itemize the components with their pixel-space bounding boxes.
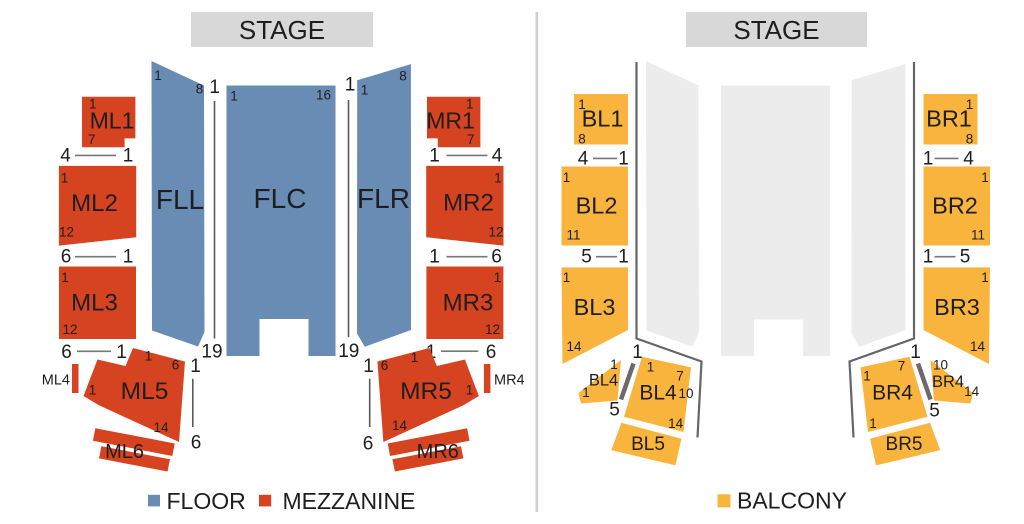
svg-text:5: 5 — [609, 400, 620, 421]
svg-text:1: 1 — [345, 75, 356, 96]
svg-text:19: 19 — [338, 341, 359, 362]
svg-text:FLL: FLL — [156, 184, 204, 215]
svg-text:BL4: BL4 — [589, 372, 618, 390]
svg-text:6: 6 — [61, 247, 72, 268]
svg-text:14: 14 — [964, 384, 980, 399]
svg-text:11: 11 — [566, 227, 580, 242]
svg-text:1: 1 — [429, 145, 440, 166]
svg-text:5: 5 — [581, 246, 592, 267]
svg-text:1: 1 — [981, 170, 989, 185]
svg-text:1: 1 — [61, 171, 69, 186]
svg-text:1: 1 — [429, 247, 440, 268]
svg-text:BL3: BL3 — [574, 294, 616, 320]
svg-text:1: 1 — [610, 357, 618, 372]
svg-text:ML6: ML6 — [105, 441, 144, 463]
svg-text:4: 4 — [578, 148, 589, 169]
svg-text:1: 1 — [411, 350, 419, 365]
svg-text:1: 1 — [61, 270, 69, 285]
svg-text:6: 6 — [363, 434, 374, 455]
svg-text:4: 4 — [60, 145, 71, 166]
svg-text:BALCONY: BALCONY — [737, 488, 847, 514]
svg-text:11: 11 — [971, 227, 985, 242]
svg-text:MR1: MR1 — [426, 108, 475, 134]
svg-text:1: 1 — [154, 68, 162, 83]
svg-text:6: 6 — [486, 342, 497, 363]
svg-text:MR3: MR3 — [443, 290, 494, 317]
svg-text:BR4: BR4 — [872, 382, 913, 405]
svg-text:MR6: MR6 — [417, 441, 459, 463]
svg-text:1: 1 — [863, 369, 871, 384]
svg-text:BL2: BL2 — [576, 193, 618, 219]
svg-text:6: 6 — [191, 433, 202, 454]
svg-text:1: 1 — [869, 416, 877, 431]
svg-text:5: 5 — [960, 246, 971, 267]
svg-text:6: 6 — [381, 358, 389, 373]
svg-text:ML1: ML1 — [90, 108, 135, 134]
svg-text:1: 1 — [145, 349, 153, 364]
svg-text:6: 6 — [491, 247, 502, 268]
svg-text:MR4: MR4 — [494, 373, 525, 389]
svg-text:MR2: MR2 — [443, 190, 494, 217]
svg-text:1: 1 — [209, 77, 220, 98]
svg-text:12: 12 — [62, 322, 77, 337]
svg-text:1: 1 — [466, 383, 474, 398]
svg-text:10: 10 — [678, 386, 693, 401]
svg-text:1: 1 — [923, 246, 934, 267]
svg-text:1: 1 — [563, 170, 571, 185]
svg-text:19: 19 — [201, 342, 222, 363]
svg-text:1: 1 — [647, 360, 655, 375]
svg-text:1: 1 — [190, 356, 201, 377]
svg-text:1: 1 — [923, 148, 934, 169]
svg-text:BL1: BL1 — [582, 106, 624, 132]
svg-text:7: 7 — [676, 369, 684, 384]
svg-text:10: 10 — [933, 358, 948, 373]
svg-text:1: 1 — [981, 270, 989, 285]
svg-text:ML5: ML5 — [121, 378, 169, 405]
svg-text:1: 1 — [910, 342, 921, 363]
svg-text:FLOOR: FLOOR — [167, 488, 246, 514]
svg-text:1: 1 — [123, 247, 134, 268]
svg-text:14: 14 — [392, 418, 408, 433]
svg-text:BR5: BR5 — [886, 434, 923, 455]
svg-text:BR3: BR3 — [934, 294, 980, 320]
svg-text:BL4: BL4 — [639, 382, 677, 405]
svg-text:5: 5 — [929, 401, 940, 422]
svg-text:12: 12 — [485, 322, 500, 337]
svg-text:7: 7 — [467, 132, 475, 147]
svg-text:8: 8 — [966, 131, 974, 146]
svg-text:1: 1 — [363, 356, 374, 377]
svg-text:1: 1 — [123, 145, 134, 166]
svg-text:6: 6 — [61, 342, 72, 363]
svg-text:1: 1 — [618, 246, 629, 267]
svg-text:1: 1 — [230, 89, 238, 104]
svg-text:1: 1 — [494, 270, 502, 285]
svg-text:MEZZANINE: MEZZANINE — [283, 488, 416, 514]
svg-text:FLR: FLR — [357, 183, 410, 214]
svg-text:ML2: ML2 — [71, 190, 118, 217]
svg-text:STAGE: STAGE — [239, 15, 325, 45]
svg-text:ML4: ML4 — [42, 373, 70, 389]
svg-text:4: 4 — [963, 148, 974, 169]
svg-text:1: 1 — [116, 342, 127, 363]
svg-text:7: 7 — [88, 132, 96, 147]
svg-text:BR1: BR1 — [926, 106, 972, 132]
svg-text:8: 8 — [578, 131, 586, 146]
svg-text:12: 12 — [59, 225, 74, 240]
svg-text:7: 7 — [898, 359, 906, 374]
svg-text:BL5: BL5 — [631, 434, 665, 455]
svg-text:FLC: FLC — [254, 183, 307, 214]
svg-text:1: 1 — [563, 270, 571, 285]
svg-text:6: 6 — [172, 357, 180, 372]
svg-text:1: 1 — [582, 385, 590, 400]
svg-text:BR4: BR4 — [932, 373, 964, 391]
svg-text:12: 12 — [488, 225, 503, 240]
svg-text:8: 8 — [196, 82, 204, 97]
svg-text:MR5: MR5 — [400, 378, 452, 405]
svg-text:STAGE: STAGE — [733, 15, 819, 45]
svg-text:14: 14 — [153, 420, 169, 435]
svg-text:14: 14 — [566, 339, 582, 354]
svg-text:4: 4 — [492, 145, 503, 166]
svg-text:8: 8 — [399, 69, 407, 84]
svg-text:BR2: BR2 — [932, 193, 978, 219]
svg-text:1: 1 — [361, 83, 369, 98]
svg-text:14: 14 — [668, 416, 684, 431]
svg-text:1: 1 — [494, 171, 502, 186]
svg-text:14: 14 — [970, 339, 986, 354]
svg-text:16: 16 — [316, 88, 331, 103]
svg-text:1: 1 — [618, 148, 629, 169]
svg-text:1: 1 — [89, 383, 97, 398]
svg-text:ML3: ML3 — [71, 290, 118, 317]
